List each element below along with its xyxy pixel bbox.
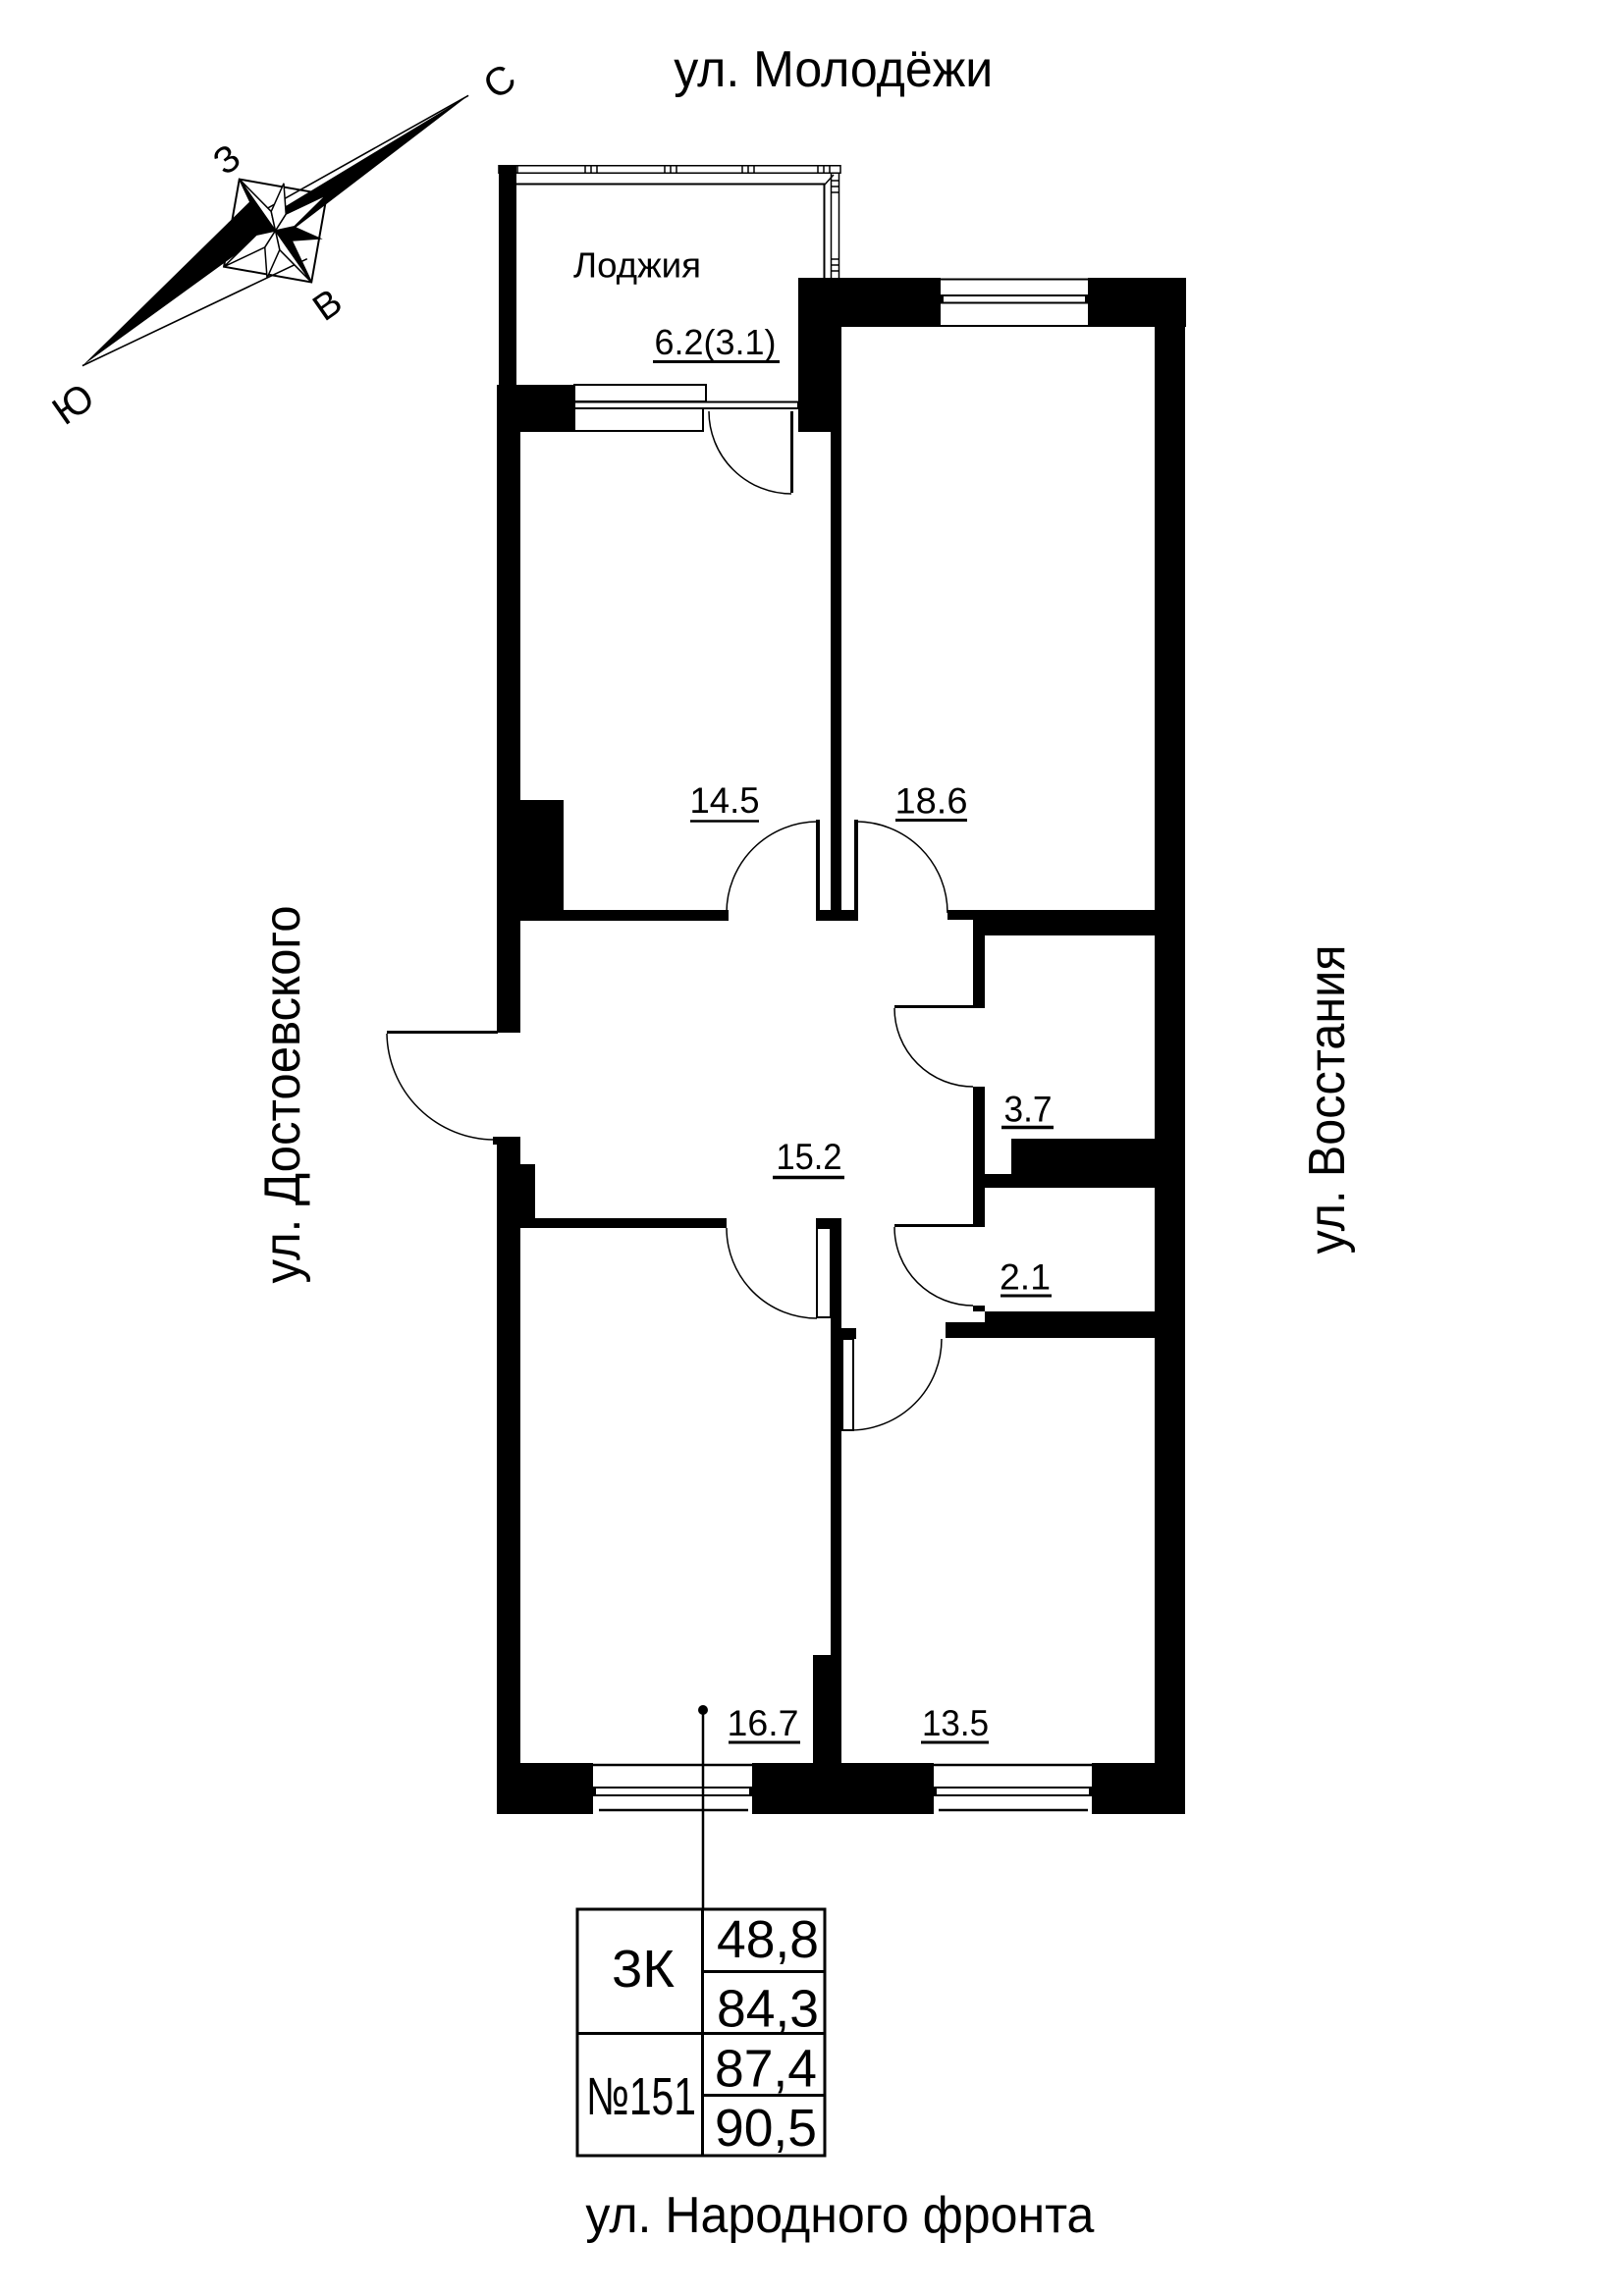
svg-text:16.7: 16.7 <box>728 1703 799 1743</box>
svg-text:ул. Восстания: ул. Восстания <box>1299 945 1356 1255</box>
svg-text:ул. Молодёжи: ул. Молодёжи <box>674 41 993 98</box>
svg-text:Лоджия: Лоджия <box>573 245 701 286</box>
svg-text:3К: 3К <box>612 1940 676 1999</box>
svg-text:84,3: 84,3 <box>717 1980 819 2039</box>
svg-text:18.6: 18.6 <box>895 781 968 822</box>
svg-text:ул. Достоевского: ул. Достоевского <box>254 906 311 1284</box>
svg-text:14.5: 14.5 <box>690 780 760 821</box>
svg-text:6.2(3.1): 6.2(3.1) <box>655 322 777 362</box>
svg-text:15.2: 15.2 <box>777 1137 842 1177</box>
svg-text:48,8: 48,8 <box>717 1910 819 1969</box>
svg-text:13.5: 13.5 <box>922 1703 989 1743</box>
svg-text:№151: №151 <box>586 2067 696 2126</box>
svg-text:87,4: 87,4 <box>715 2040 817 2099</box>
svg-text:ул. Народного фронта: ул. Народного фронта <box>585 2187 1094 2244</box>
svg-text:2.1: 2.1 <box>1000 1257 1051 1298</box>
svg-text:90,5: 90,5 <box>715 2099 817 2158</box>
svg-text:3.7: 3.7 <box>1004 1090 1053 1130</box>
